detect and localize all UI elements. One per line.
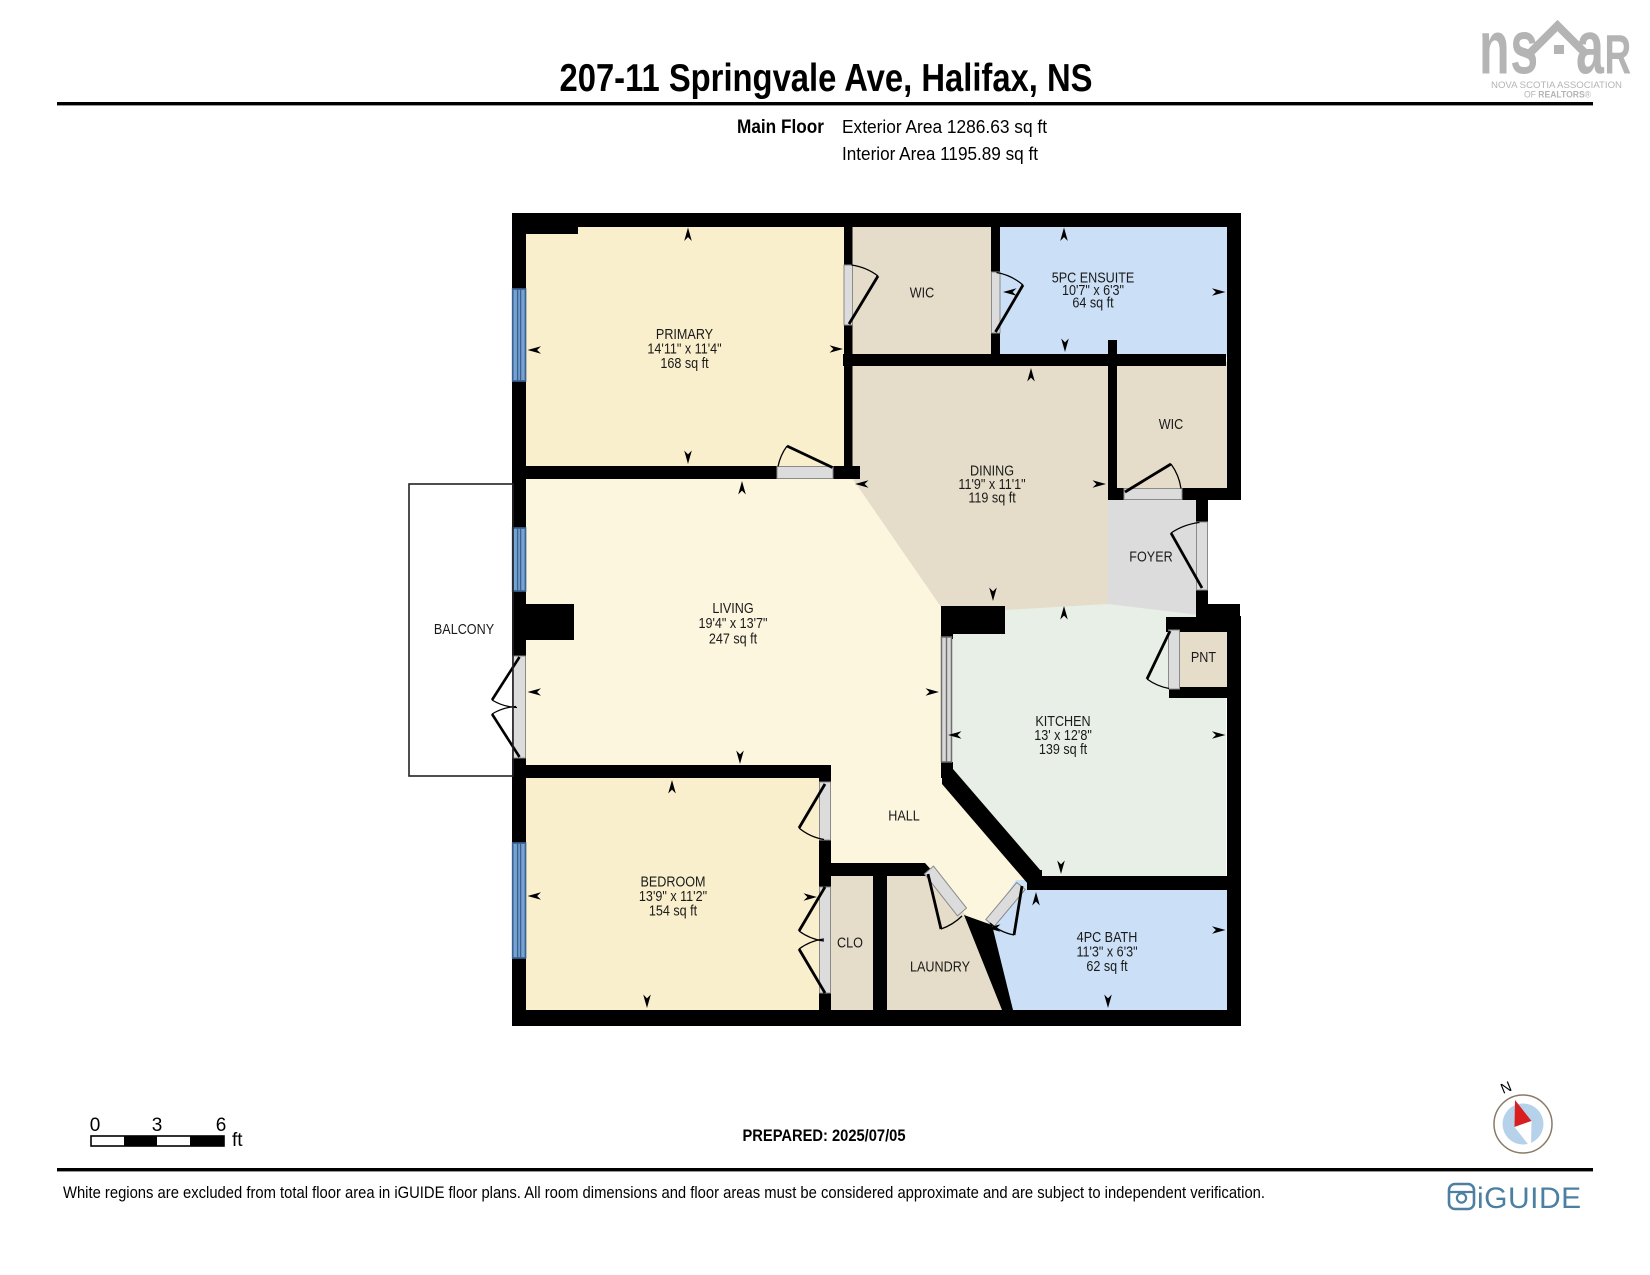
svg-text:FOYER: FOYER — [1129, 547, 1172, 564]
svg-text:168 sq ft: 168 sq ft — [660, 354, 708, 371]
svg-text:247 sq ft: 247 sq ft — [709, 629, 757, 646]
svg-text:ft: ft — [232, 1130, 243, 1151]
svg-text:WIC: WIC — [910, 283, 934, 300]
svg-text:6: 6 — [216, 1115, 227, 1136]
svg-text:64 sq ft: 64 sq ft — [1072, 293, 1113, 310]
svg-text:119 sq ft: 119 sq ft — [968, 488, 1016, 505]
svg-text:PREPARED: 2025/07/05: PREPARED: 2025/07/05 — [743, 1126, 906, 1145]
svg-text:N: N — [1499, 1079, 1515, 1098]
svg-text:iGUIDE: iGUIDE — [1477, 1182, 1582, 1215]
svg-text:3: 3 — [152, 1115, 163, 1136]
svg-text:Exterior Area 1286.63 sq ft: Exterior Area 1286.63 sq ft — [842, 116, 1047, 137]
svg-text:CLO: CLO — [837, 933, 863, 950]
svg-text:Main Floor: Main Floor — [737, 117, 825, 138]
svg-text:HALL: HALL — [888, 806, 920, 823]
svg-text:OF REALTORS®: OF REALTORS® — [1524, 90, 1591, 101]
svg-text:BALCONY: BALCONY — [434, 620, 494, 637]
svg-text:154 sq ft: 154 sq ft — [649, 901, 697, 918]
svg-text:PNT: PNT — [1191, 648, 1217, 665]
svg-text:WIC: WIC — [1159, 415, 1183, 432]
svg-text:Interior Area 1195.89 sq ft: Interior Area 1195.89 sq ft — [842, 143, 1038, 164]
svg-text:62 sq ft: 62 sq ft — [1086, 957, 1127, 974]
svg-text:207-11 Springvale Ave, Halifax: 207-11 Springvale Ave, Halifax, NS — [560, 57, 1093, 100]
svg-text:White regions are excluded fro: White regions are excluded from total fl… — [63, 1184, 1265, 1202]
svg-text:139 sq ft: 139 sq ft — [1039, 740, 1087, 757]
svg-text:0: 0 — [90, 1115, 101, 1136]
svg-text:LAUNDRY: LAUNDRY — [910, 957, 970, 974]
